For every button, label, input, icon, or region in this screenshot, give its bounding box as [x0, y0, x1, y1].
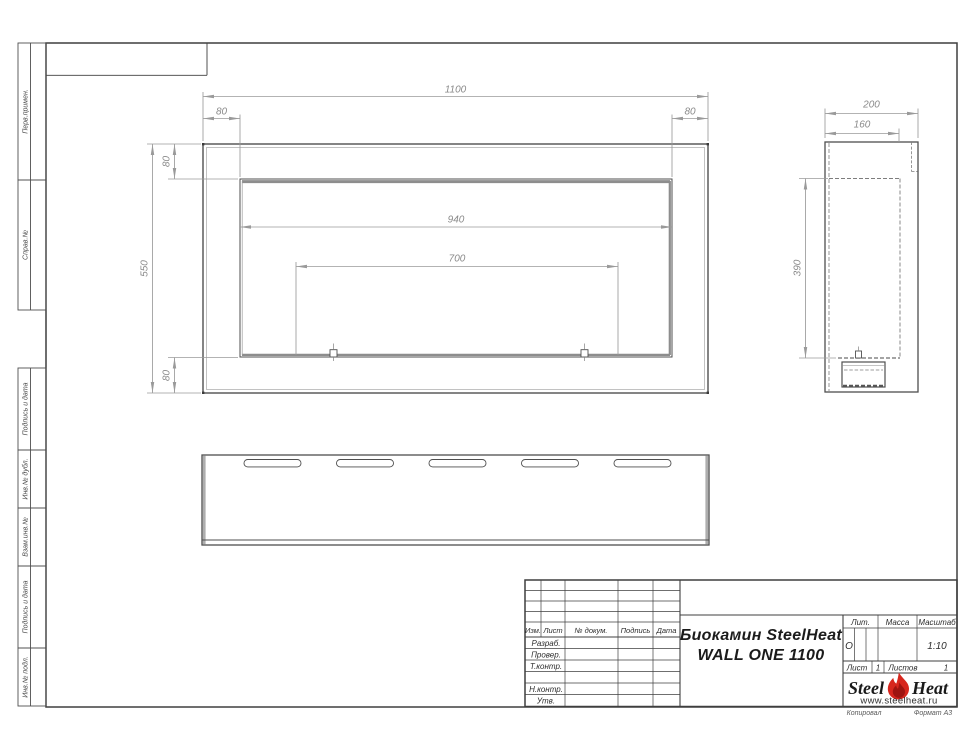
row-tkontr: Т.контр. [530, 662, 562, 671]
margin-label: Взам.инв.№ [23, 517, 30, 557]
dim-side-opening-height: 390 [793, 259, 804, 276]
burner-clip [330, 344, 337, 362]
sheets-value: 1 [944, 664, 948, 673]
scale-value: 1:10 [927, 641, 947, 652]
col-izm: Изм. [525, 626, 541, 635]
dim-side-depth: 200 [862, 100, 880, 111]
logo-site: www.steelheat.ru [859, 696, 937, 707]
front-dimension-labels: 1100 80 80 550 80 80 940 700 [140, 85, 696, 382]
dim-front-bottom-offset: 80 [162, 370, 173, 382]
drawing-sheet: Перв.примен. Справ.№ Подпись и дата Инв.… [0, 0, 970, 750]
margin-label: Инв.№ подл. [22, 656, 30, 698]
col-date: Дата [656, 626, 677, 635]
bottom-view [202, 455, 709, 545]
footer-kopiroval: Копировал [847, 710, 882, 717]
scale-label: Масштаб [918, 618, 956, 627]
dim-burner-width: 700 [449, 254, 466, 265]
burner-clip [856, 347, 862, 359]
margin-label: Инв.№ дубл. [22, 458, 30, 499]
margin-label: Подпись и дата [22, 382, 30, 435]
dim-opening-width: 940 [448, 215, 465, 226]
margin-label: Перв.примен. [23, 89, 30, 134]
doc-title-line2: WALL ONE 1100 [698, 647, 825, 664]
dim-front-top-offset: 80 [162, 156, 173, 168]
doc-title-line1: Биокамин SteelHeat [680, 627, 842, 644]
dim-front-height: 550 [140, 260, 151, 277]
front-dimensions [147, 92, 708, 393]
sheet-frame [46, 43, 957, 707]
blueprint-canvas: Перв.примен. Справ.№ Подпись и дата Инв.… [0, 0, 970, 750]
burner-clip [581, 344, 588, 362]
sheet-value: 1 [876, 664, 880, 673]
sheets-label: Листов [887, 664, 917, 673]
dim-front-inset-left: 80 [216, 107, 228, 118]
dim-front-inset-right: 80 [684, 107, 696, 118]
lit-label: Лит. [850, 618, 870, 627]
margin-label: Справ.№ [23, 230, 30, 260]
mass-label: Масса [886, 618, 910, 627]
vent-slot [244, 460, 301, 467]
dim-front-width: 1100 [445, 85, 467, 96]
dim-side-inner-depth: 160 [854, 120, 871, 131]
row-prover: Провер. [531, 651, 561, 660]
lit-value: О [845, 641, 853, 652]
margin-label: Подпись и дата [22, 580, 30, 633]
sheet-label: Лист [846, 664, 868, 673]
frame-footer: Копировал Формат А3 [847, 710, 953, 717]
row-razrab: Разраб. [532, 639, 561, 648]
row-nkontr: Н.контр. [529, 685, 563, 694]
col-list: Лист [542, 626, 562, 635]
front-view [202, 143, 709, 394]
vent-slot [337, 460, 394, 467]
footer-format: Формат А3 [914, 710, 952, 717]
vent-slot [614, 460, 671, 467]
vent-slot [522, 460, 579, 467]
col-sign: Подпись [621, 626, 651, 635]
side-view [825, 142, 918, 392]
vent-slot [429, 460, 486, 467]
steelheat-logo: Steel Heat www.steelheat.ru [848, 673, 949, 707]
col-doc: № докум. [574, 626, 607, 635]
burner-tray [842, 362, 885, 387]
row-utv: Утв. [536, 697, 555, 706]
